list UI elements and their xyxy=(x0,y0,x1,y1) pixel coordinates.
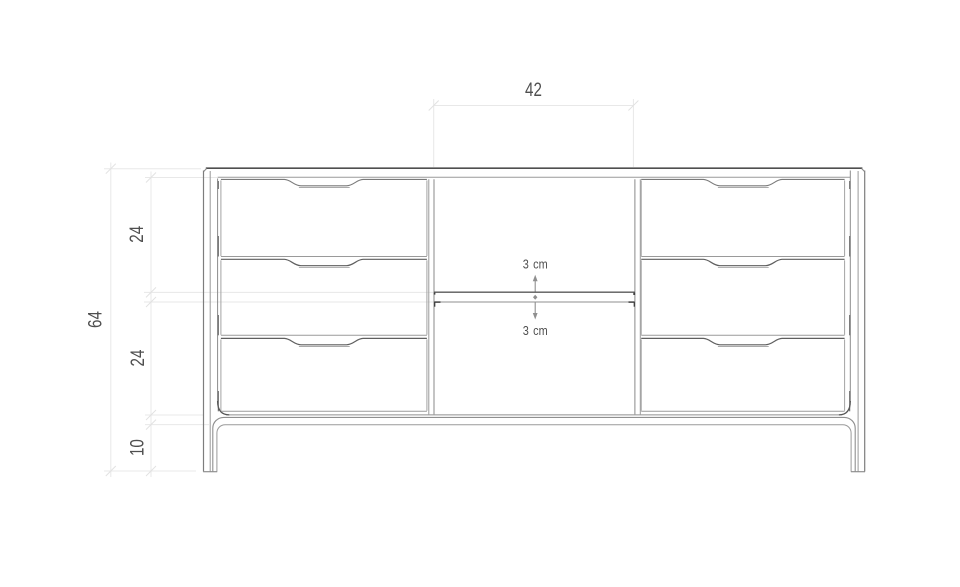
svg-text:3 cm: 3 cm xyxy=(523,323,548,338)
svg-text:24: 24 xyxy=(126,349,148,366)
svg-text:42: 42 xyxy=(525,79,542,101)
svg-text:64: 64 xyxy=(84,311,106,328)
svg-text:24: 24 xyxy=(125,225,147,242)
svg-text:10: 10 xyxy=(126,439,148,456)
svg-text:3 cm: 3 cm xyxy=(523,256,548,271)
